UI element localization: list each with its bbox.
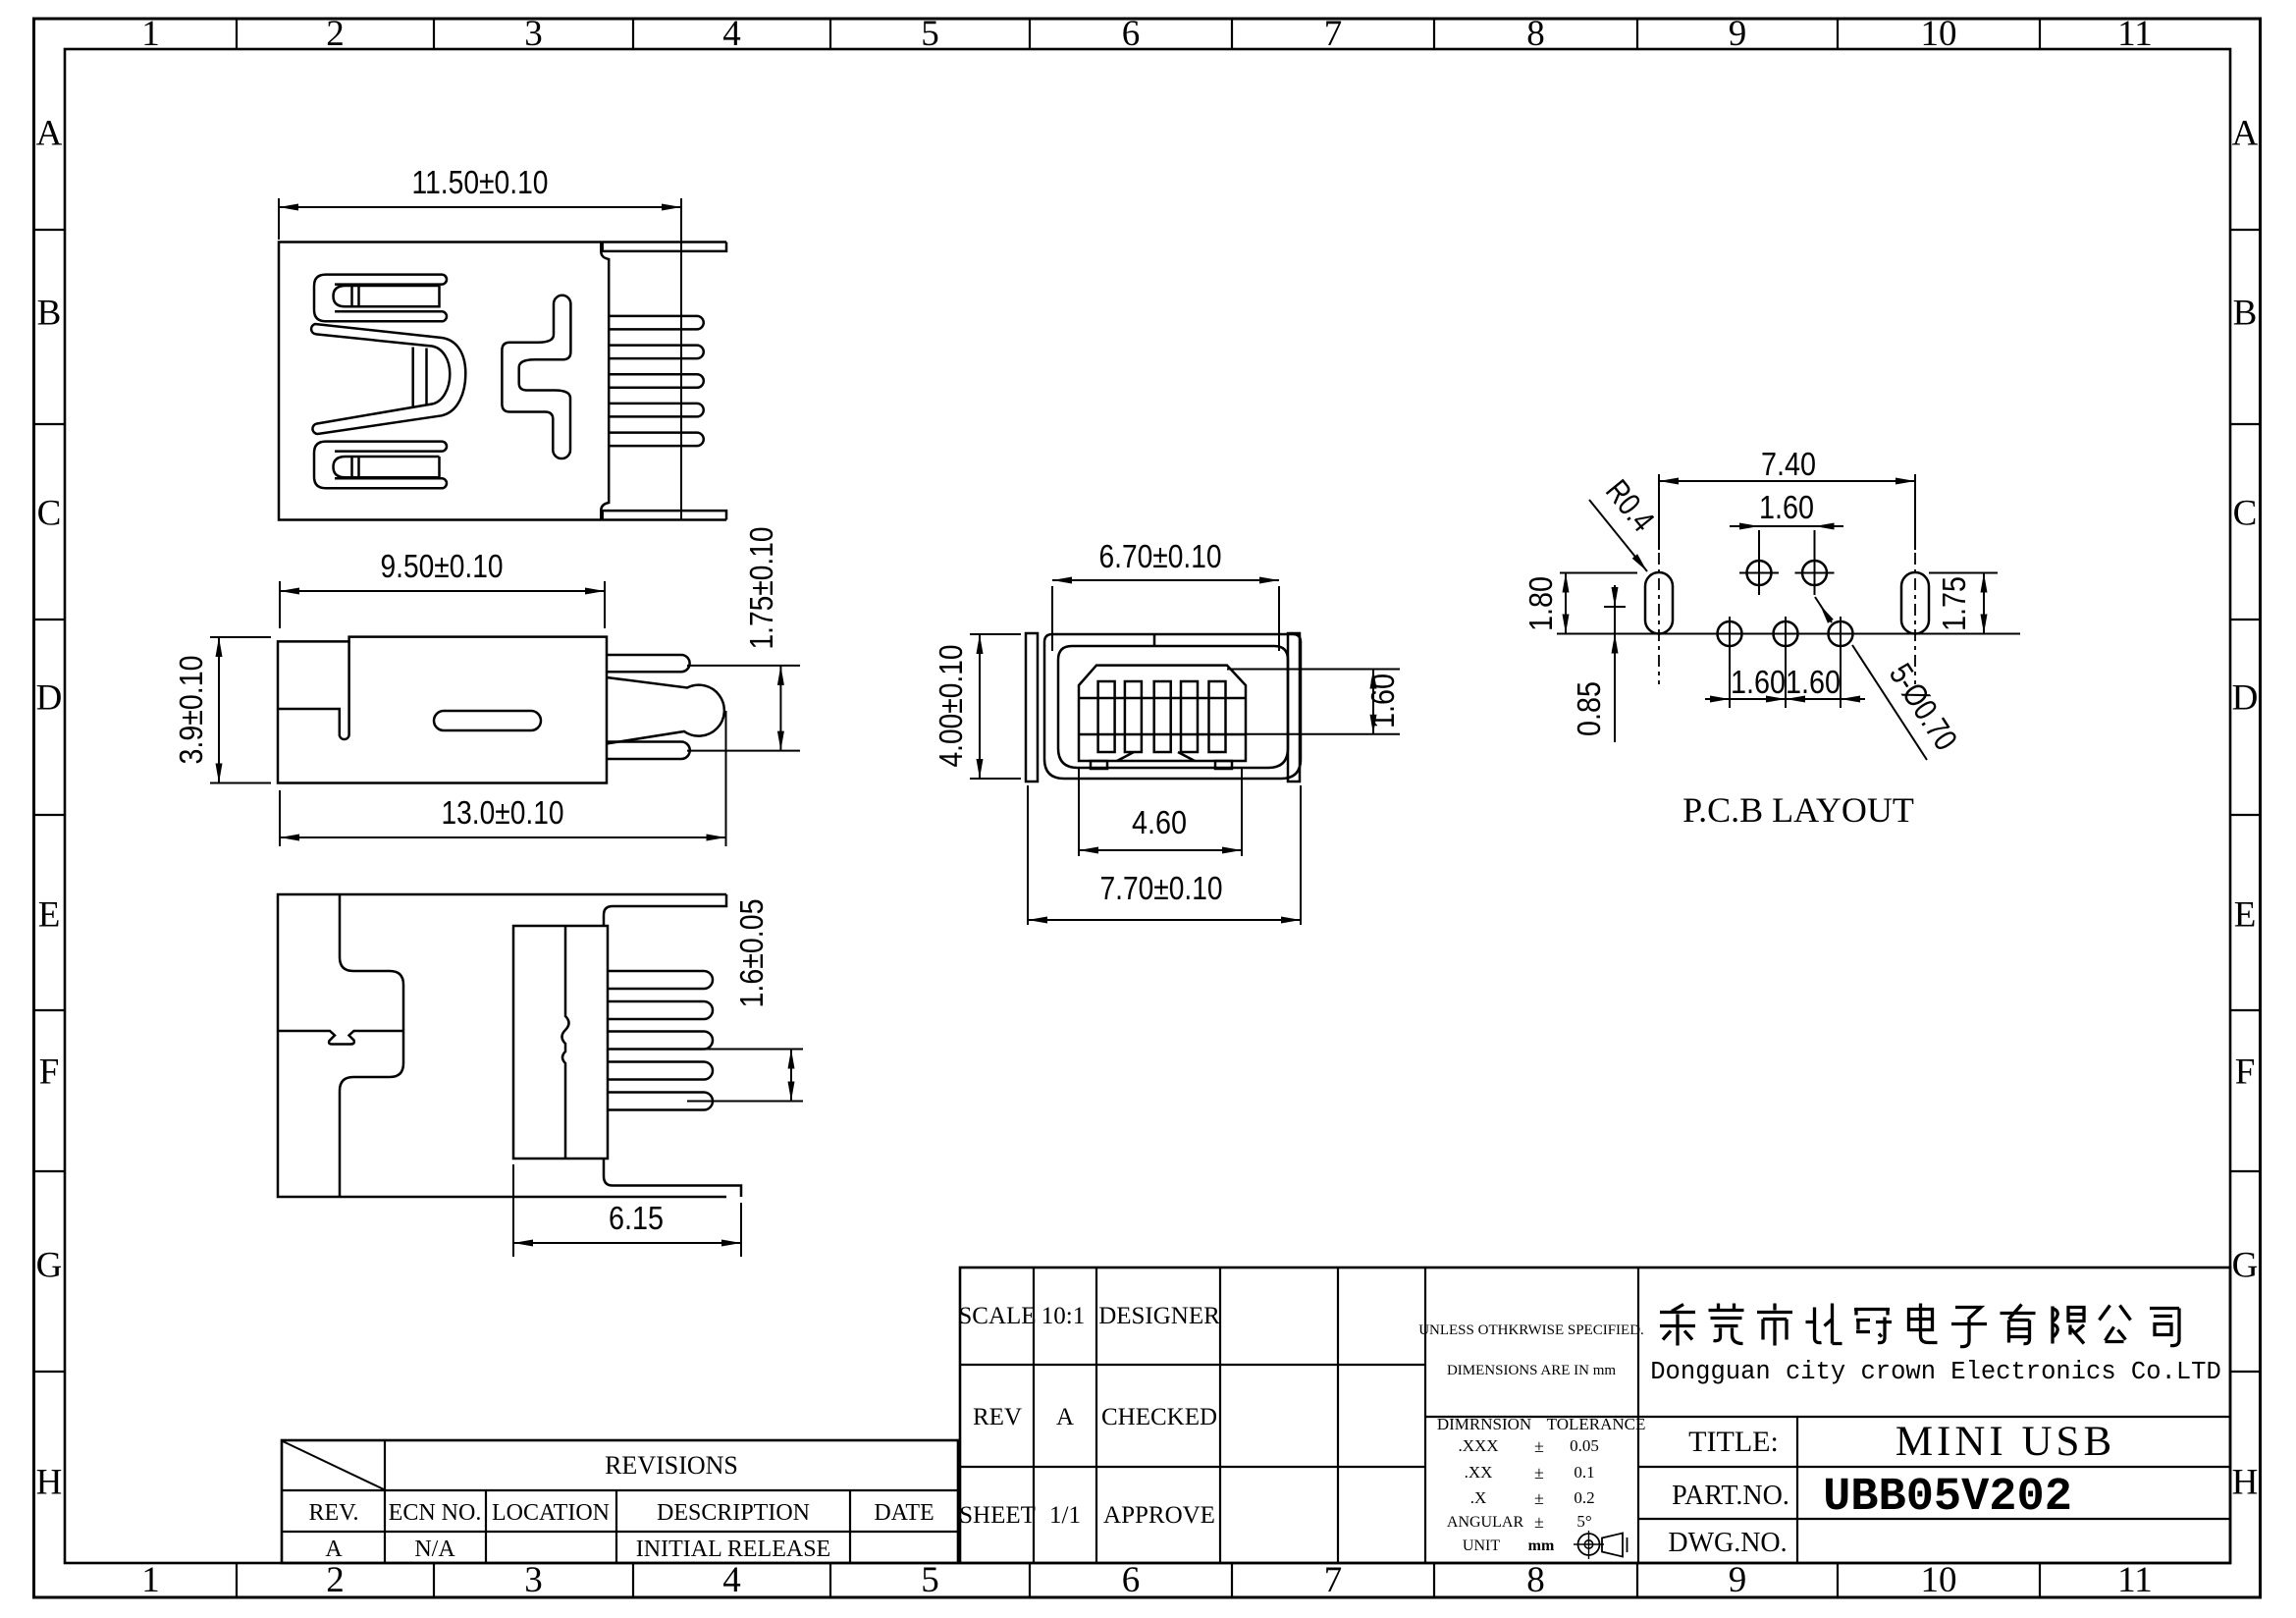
svg-text:±: ± xyxy=(1534,1512,1544,1532)
svg-text:9: 9 xyxy=(1729,14,1747,54)
svg-text:C: C xyxy=(37,494,62,534)
svg-text:ANGULAR: ANGULAR xyxy=(1447,1514,1524,1531)
svg-text:TITLE:: TITLE: xyxy=(1688,1426,1779,1458)
svg-text:DATE: DATE xyxy=(874,1500,934,1526)
svg-text:UNLESS OTHKRWISE SPECIFIED.: UNLESS OTHKRWISE SPECIFIED. xyxy=(1418,1322,1644,1338)
svg-text:6.15: 6.15 xyxy=(609,1200,664,1236)
svg-text:5-Ø0.70: 5-Ø0.70 xyxy=(1883,657,1965,757)
svg-text:1.75±0.10: 1.75±0.10 xyxy=(743,527,779,650)
svg-text:±: ± xyxy=(1534,1436,1544,1456)
svg-text:3.9±0.10: 3.9±0.10 xyxy=(173,656,209,765)
svg-text:±: ± xyxy=(1534,1463,1544,1483)
svg-text:E: E xyxy=(2234,895,2257,936)
svg-text:11: 11 xyxy=(2117,14,2153,54)
svg-text:1.60: 1.60 xyxy=(1759,489,1814,525)
svg-text:10: 10 xyxy=(1921,14,1957,54)
svg-text:6: 6 xyxy=(1122,1560,1141,1600)
svg-text:A: A xyxy=(325,1537,343,1562)
svg-text:A: A xyxy=(36,114,63,154)
svg-text:1.60: 1.60 xyxy=(1731,664,1786,700)
svg-text:D: D xyxy=(36,678,63,719)
svg-text:4.00±0.10: 4.00±0.10 xyxy=(933,645,969,768)
svg-text:0.1: 0.1 xyxy=(1574,1463,1594,1482)
svg-text:7.40: 7.40 xyxy=(1761,446,1816,482)
svg-text:7.70±0.10: 7.70±0.10 xyxy=(1100,870,1223,906)
svg-text:0.85: 0.85 xyxy=(1571,681,1607,736)
svg-text:0.05: 0.05 xyxy=(1570,1436,1599,1455)
svg-text:2: 2 xyxy=(326,1560,345,1600)
svg-text:A: A xyxy=(1056,1404,1074,1430)
svg-text:F: F xyxy=(39,1052,60,1093)
svg-text:REV: REV xyxy=(973,1404,1022,1430)
svg-text:1.6±0.05: 1.6±0.05 xyxy=(733,899,770,1008)
svg-text:8: 8 xyxy=(1526,1560,1545,1600)
svg-text:6.70±0.10: 6.70±0.10 xyxy=(1099,538,1222,574)
svg-text:1.60: 1.60 xyxy=(1786,664,1841,700)
svg-text:3: 3 xyxy=(524,14,543,54)
svg-text:G: G xyxy=(2232,1246,2259,1286)
svg-text:DWG.NO.: DWG.NO. xyxy=(1668,1528,1787,1558)
svg-text:Dongguan city crown Electronic: Dongguan city crown Electronics Co.LTD xyxy=(1650,1358,2221,1386)
svg-text:mm: mm xyxy=(1528,1537,1555,1554)
svg-text:11: 11 xyxy=(2117,1560,2153,1600)
svg-text:INITIAL RELEASE: INITIAL RELEASE xyxy=(636,1537,830,1562)
svg-text:UNIT: UNIT xyxy=(1463,1537,1500,1554)
svg-text:4: 4 xyxy=(722,1560,741,1600)
svg-text:D: D xyxy=(2232,678,2259,719)
svg-text:TOLERANCE: TOLERANCE xyxy=(1547,1415,1646,1433)
svg-text:1.60: 1.60 xyxy=(1364,674,1401,728)
svg-text:10:1: 10:1 xyxy=(1041,1303,1085,1329)
svg-text:E: E xyxy=(38,895,61,936)
svg-text:6: 6 xyxy=(1122,14,1141,54)
svg-text:DIMENSIONS ARE IN mm: DIMENSIONS ARE IN mm xyxy=(1447,1363,1616,1378)
svg-text:4.60: 4.60 xyxy=(1132,804,1187,840)
svg-text:APPROVE: APPROVE xyxy=(1103,1502,1215,1529)
svg-text:4: 4 xyxy=(722,14,741,54)
svg-text:5°: 5° xyxy=(1576,1512,1591,1531)
svg-text:A: A xyxy=(2232,114,2259,154)
svg-text:P.C.B LAYOUT: P.C.B LAYOUT xyxy=(1682,790,1914,830)
svg-text:PART.NO.: PART.NO. xyxy=(1672,1481,1789,1511)
svg-text:.XX: .XX xyxy=(1465,1463,1493,1482)
svg-text:9: 9 xyxy=(1729,1560,1747,1600)
svg-text:5: 5 xyxy=(921,14,939,54)
svg-text:REVISIONS: REVISIONS xyxy=(605,1451,738,1480)
svg-text:F: F xyxy=(2235,1052,2256,1093)
svg-text:0.2: 0.2 xyxy=(1574,1488,1594,1507)
svg-text:2: 2 xyxy=(326,14,345,54)
svg-text:7: 7 xyxy=(1324,14,1343,54)
svg-text:H: H xyxy=(2232,1463,2259,1503)
svg-text:11.50±0.10: 11.50±0.10 xyxy=(412,164,549,200)
svg-text:C: C xyxy=(2233,494,2258,534)
svg-text:ECN NO.: ECN NO. xyxy=(389,1500,482,1526)
svg-text:3: 3 xyxy=(524,1560,543,1600)
svg-text:9.50±0.10: 9.50±0.10 xyxy=(381,548,504,584)
svg-text:SCALE: SCALE xyxy=(958,1303,1036,1329)
svg-text:SHEET: SHEET xyxy=(959,1502,1036,1529)
svg-text:DIMRNSION: DIMRNSION xyxy=(1437,1415,1531,1433)
svg-text:REV.: REV. xyxy=(309,1500,359,1526)
svg-text:.XXX: .XXX xyxy=(1458,1436,1498,1455)
svg-text:UBB05V202: UBB05V202 xyxy=(1823,1472,2072,1524)
svg-text:8: 8 xyxy=(1526,14,1545,54)
svg-text:B: B xyxy=(37,294,62,334)
svg-text:±: ± xyxy=(1534,1488,1544,1508)
svg-text:R0.4: R0.4 xyxy=(1599,472,1662,538)
svg-text:H: H xyxy=(36,1463,63,1503)
svg-text:1/1: 1/1 xyxy=(1049,1502,1081,1529)
svg-text:CHECKED: CHECKED xyxy=(1101,1404,1217,1430)
svg-text:G: G xyxy=(36,1246,63,1286)
svg-text:DESCRIPTION: DESCRIPTION xyxy=(657,1500,810,1526)
svg-text:LOCATION: LOCATION xyxy=(492,1500,610,1526)
svg-text:MINI USB: MINI USB xyxy=(1896,1419,2115,1465)
svg-text:1.80: 1.80 xyxy=(1522,576,1559,631)
svg-text:DESIGNER: DESIGNER xyxy=(1098,1303,1220,1329)
svg-text:1: 1 xyxy=(141,14,160,54)
svg-text:7: 7 xyxy=(1324,1560,1343,1600)
svg-text:10: 10 xyxy=(1921,1560,1957,1600)
svg-text:5: 5 xyxy=(921,1560,939,1600)
svg-text:.X: .X xyxy=(1470,1488,1487,1507)
svg-text:13.0±0.10: 13.0±0.10 xyxy=(442,794,564,831)
svg-text:1: 1 xyxy=(141,1560,160,1600)
svg-text:B: B xyxy=(2233,294,2258,334)
svg-text:1.75: 1.75 xyxy=(1936,576,1972,631)
svg-text:N/A: N/A xyxy=(414,1537,455,1562)
